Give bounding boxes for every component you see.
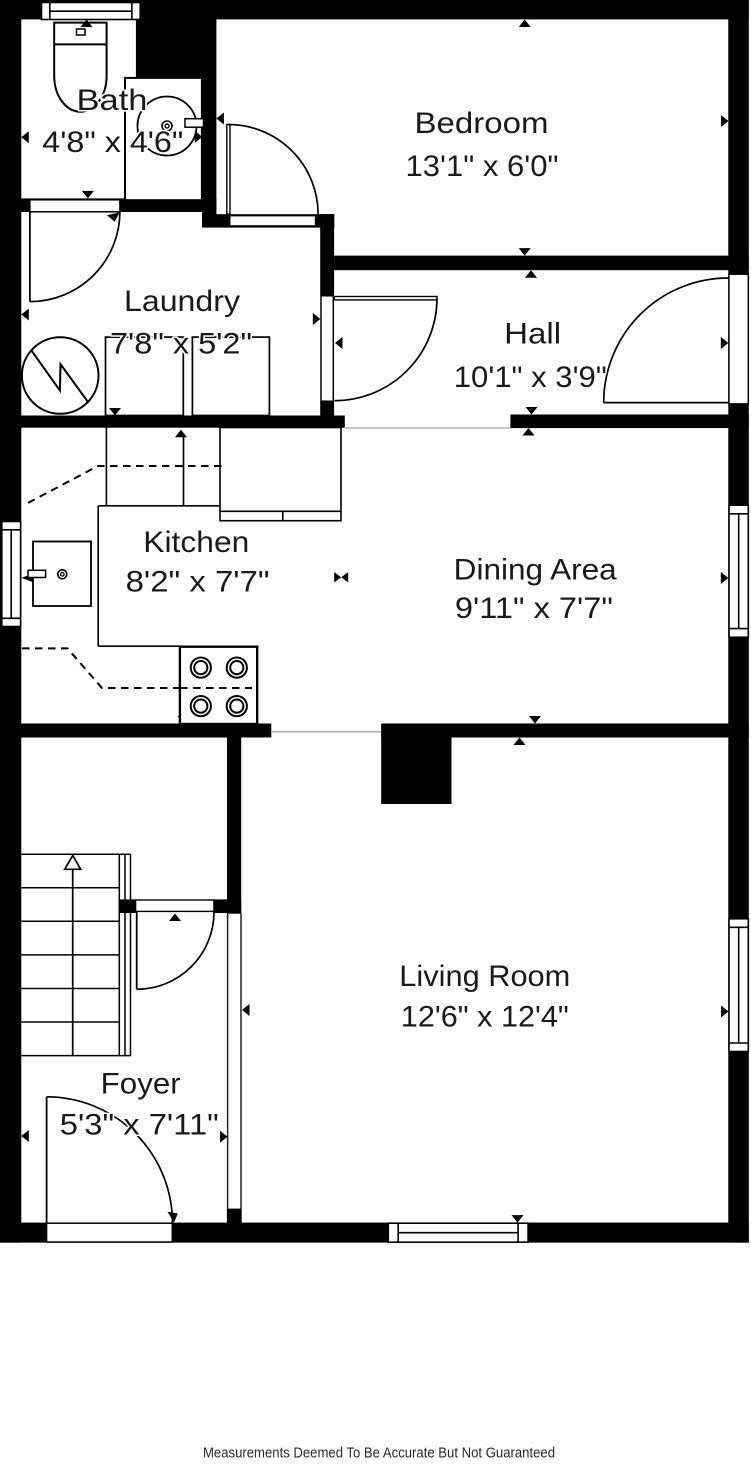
svg-text:9'11" x 7'7": 9'11" x 7'7" [455,592,613,625]
svg-text:10'1" x 3'9": 10'1" x 3'9" [454,361,607,394]
svg-text:Foyer: Foyer [101,1067,181,1100]
svg-text:Laundry: Laundry [124,285,240,318]
svg-text:8'2" x 7'7": 8'2" x 7'7" [126,566,270,599]
svg-text:Living Room: Living Room [399,960,570,993]
svg-text:Hall: Hall [504,318,561,351]
svg-text:Bedroom: Bedroom [415,107,549,140]
svg-text:Bath: Bath [77,84,148,117]
svg-text:Measurements Deemed To Be Accu: Measurements Deemed To Be Accurate But N… [203,1445,555,1461]
svg-text:13'1" x 6'0": 13'1" x 6'0" [406,150,559,183]
svg-text:7'8" x 5'2": 7'8" x 5'2" [110,328,252,361]
svg-text:5'3" x 7'11": 5'3" x 7'11" [60,1109,219,1142]
svg-text:4'8" x 4'6": 4'8" x 4'6" [42,126,183,159]
svg-text:Dining Area: Dining Area [454,554,617,587]
svg-text:12'6" x 12'4": 12'6" x 12'4" [401,1001,569,1034]
svg-text:Kitchen: Kitchen [143,526,249,559]
